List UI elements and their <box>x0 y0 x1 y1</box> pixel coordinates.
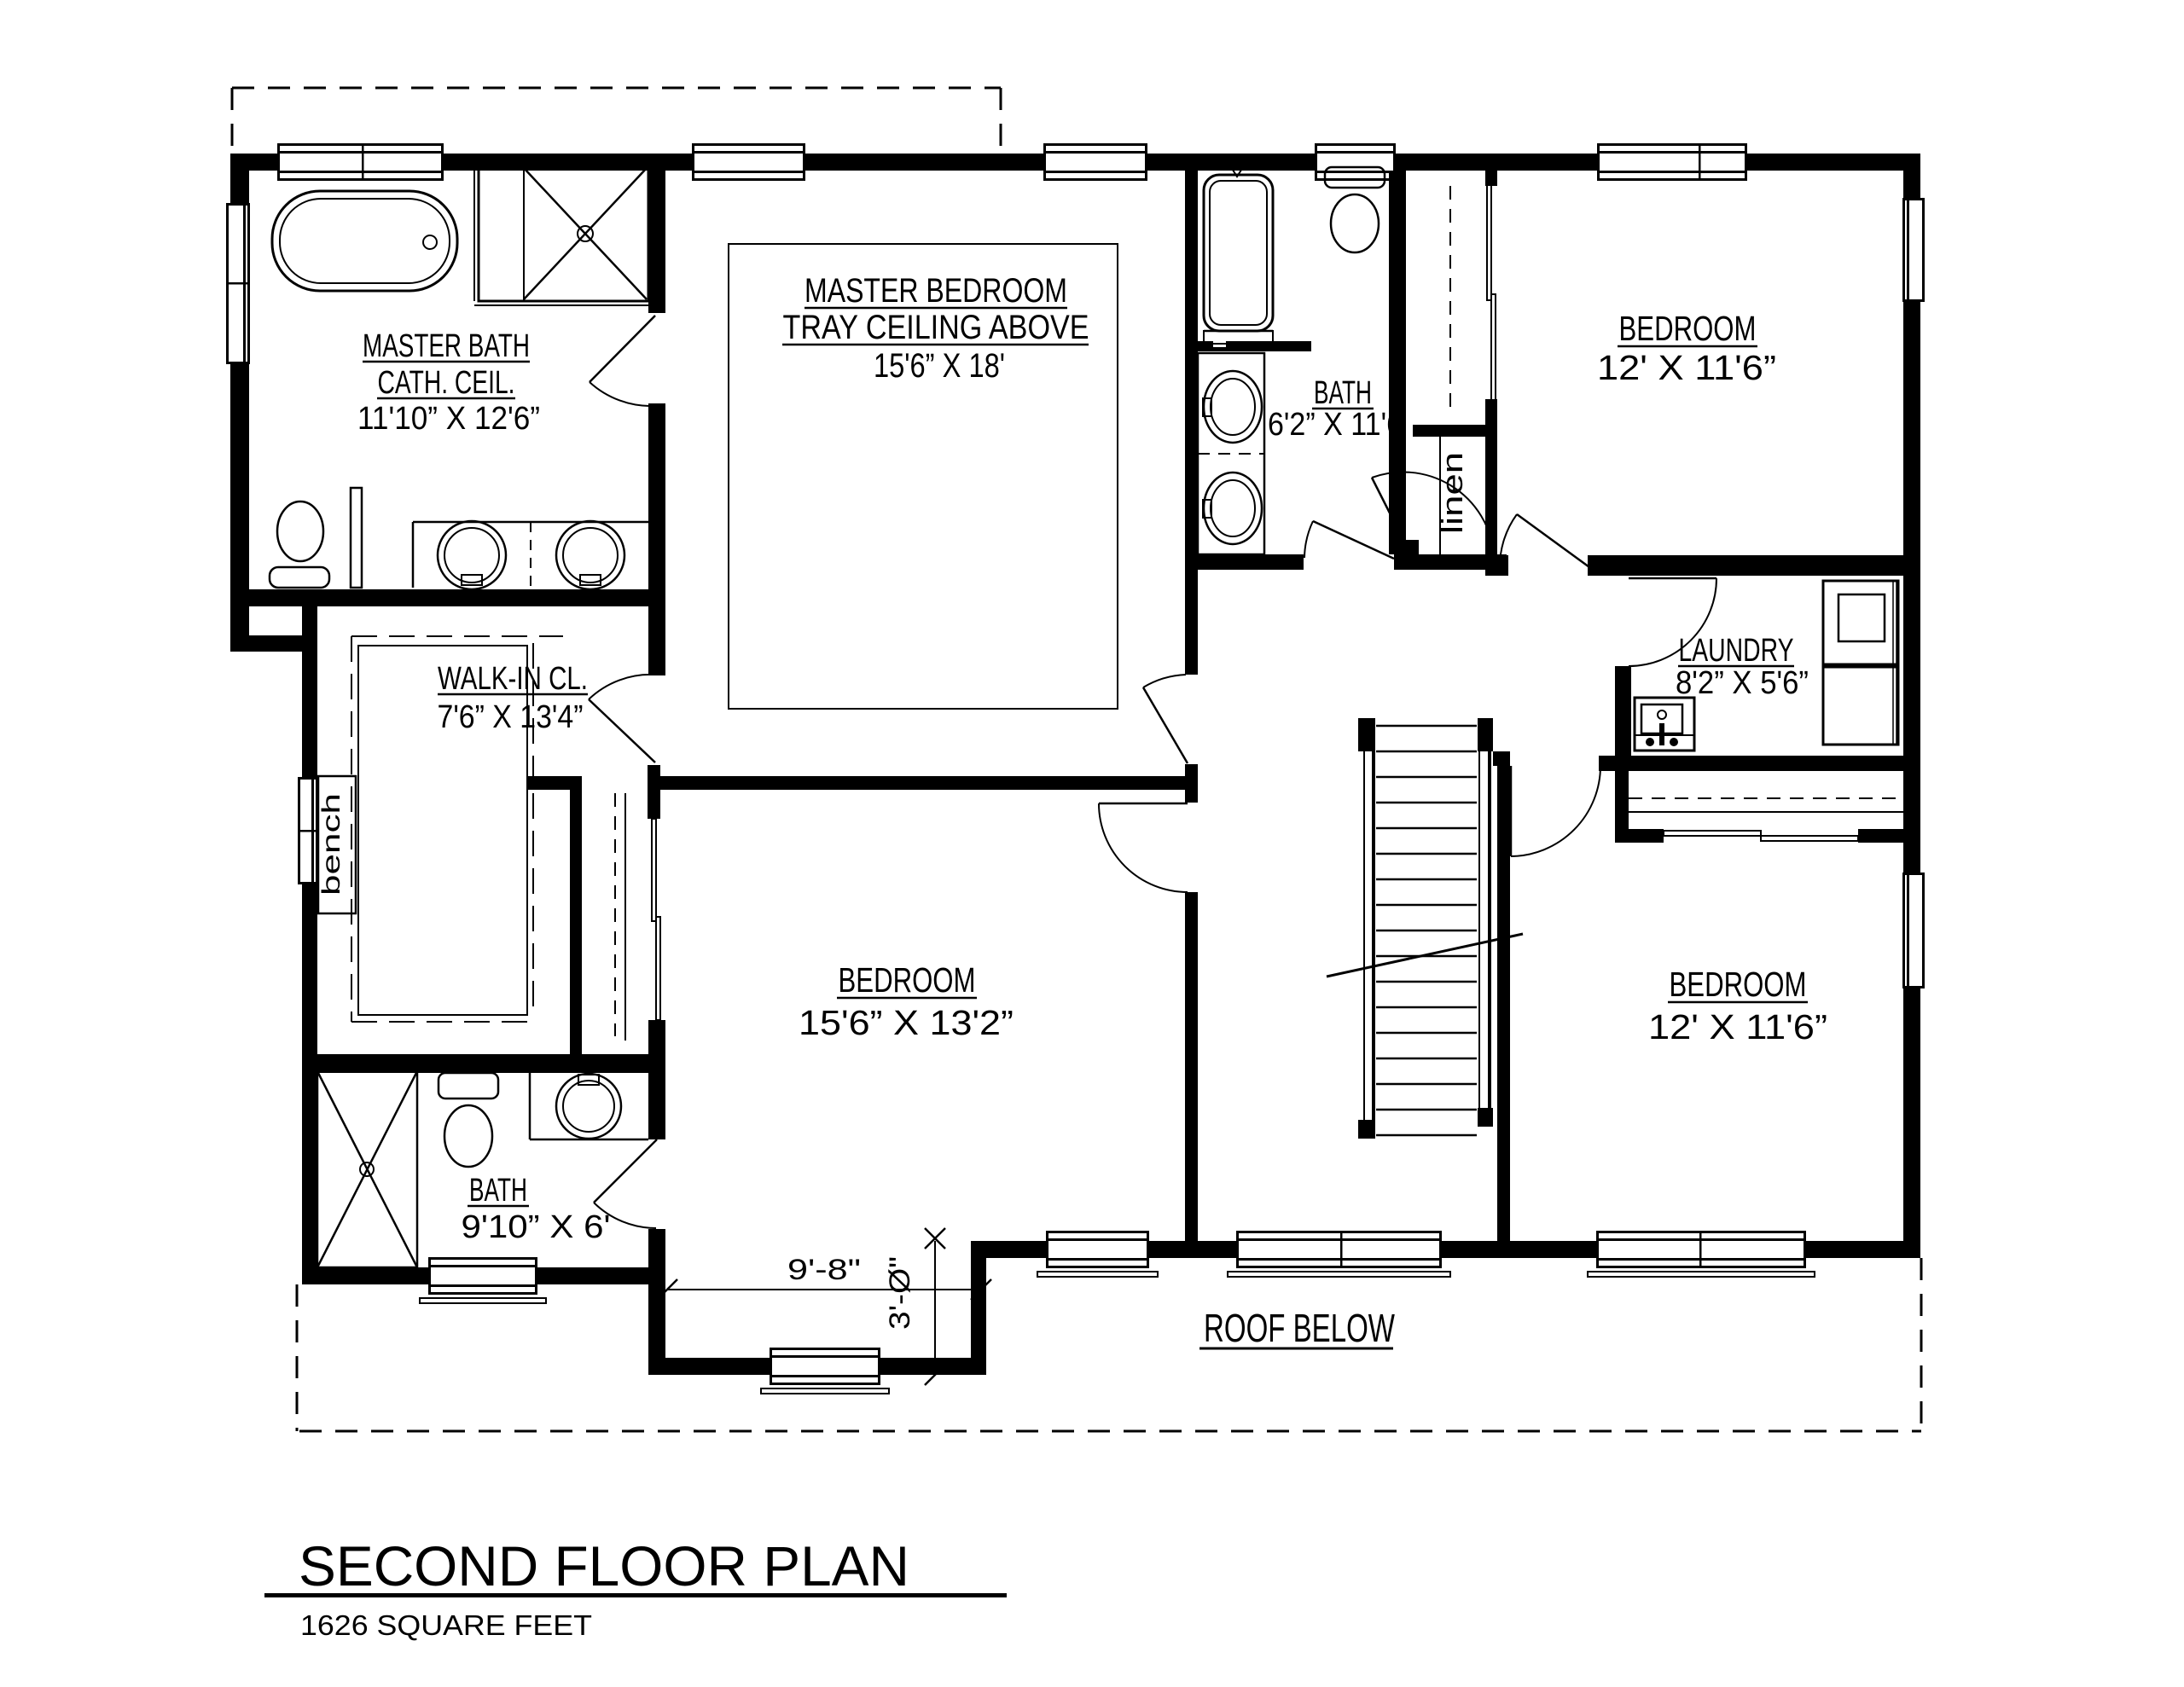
svg-text:SECOND FLOOR PLAN: SECOND FLOOR PLAN <box>299 1534 909 1597</box>
svg-text:3'-Ø": 3'-Ø" <box>884 1256 916 1330</box>
svg-text:7'6” X 13'4”: 7'6” X 13'4” <box>438 699 584 735</box>
svg-text:BEDROOM: BEDROOM <box>1619 309 1757 348</box>
svg-text:12' X 11'6”: 12' X 11'6” <box>1648 1007 1827 1046</box>
svg-text:15'6” X 18': 15'6” X 18' <box>874 347 1005 385</box>
svg-text:WALK-IN CL.: WALK-IN CL. <box>438 661 588 697</box>
svg-text:9'10” X 6': 9'10” X 6' <box>462 1209 611 1245</box>
svg-text:bench: bench <box>317 793 346 896</box>
svg-text:BATH: BATH <box>1314 375 1372 411</box>
svg-text:MASTER BATH: MASTER BATH <box>363 328 530 364</box>
svg-text:BEDROOM: BEDROOM <box>839 960 976 1000</box>
svg-text:8'2” X 5'6”: 8'2” X 5'6” <box>1676 665 1809 701</box>
svg-text:linen: linen <box>1437 452 1469 534</box>
svg-text:TRAY CEILING ABOVE: TRAY CEILING ABOVE <box>783 309 1089 346</box>
svg-text:MASTER BEDROOM: MASTER BEDROOM <box>804 272 1067 310</box>
svg-text:LAUNDRY: LAUNDRY <box>1679 633 1794 669</box>
svg-text:11'10” X 12'6”: 11'10” X 12'6” <box>357 401 540 437</box>
svg-text:ROOF BELOW: ROOF BELOW <box>1204 1306 1395 1350</box>
svg-text:BATH: BATH <box>469 1173 527 1209</box>
svg-text:BEDROOM: BEDROOM <box>1670 965 1807 1004</box>
svg-text:6'2” X 11'6: 6'2” X 11'6 <box>1268 407 1403 443</box>
svg-text:12' X 11'6”: 12' X 11'6” <box>1597 348 1776 387</box>
svg-text:9'-8": 9'-8" <box>787 1254 861 1286</box>
svg-text:15'6” X 13'2”: 15'6” X 13'2” <box>799 1003 1014 1042</box>
svg-text:CATH. CEIL.: CATH. CEIL. <box>378 365 515 401</box>
svg-text:1626 SQUARE FEET: 1626 SQUARE FEET <box>300 1609 592 1641</box>
